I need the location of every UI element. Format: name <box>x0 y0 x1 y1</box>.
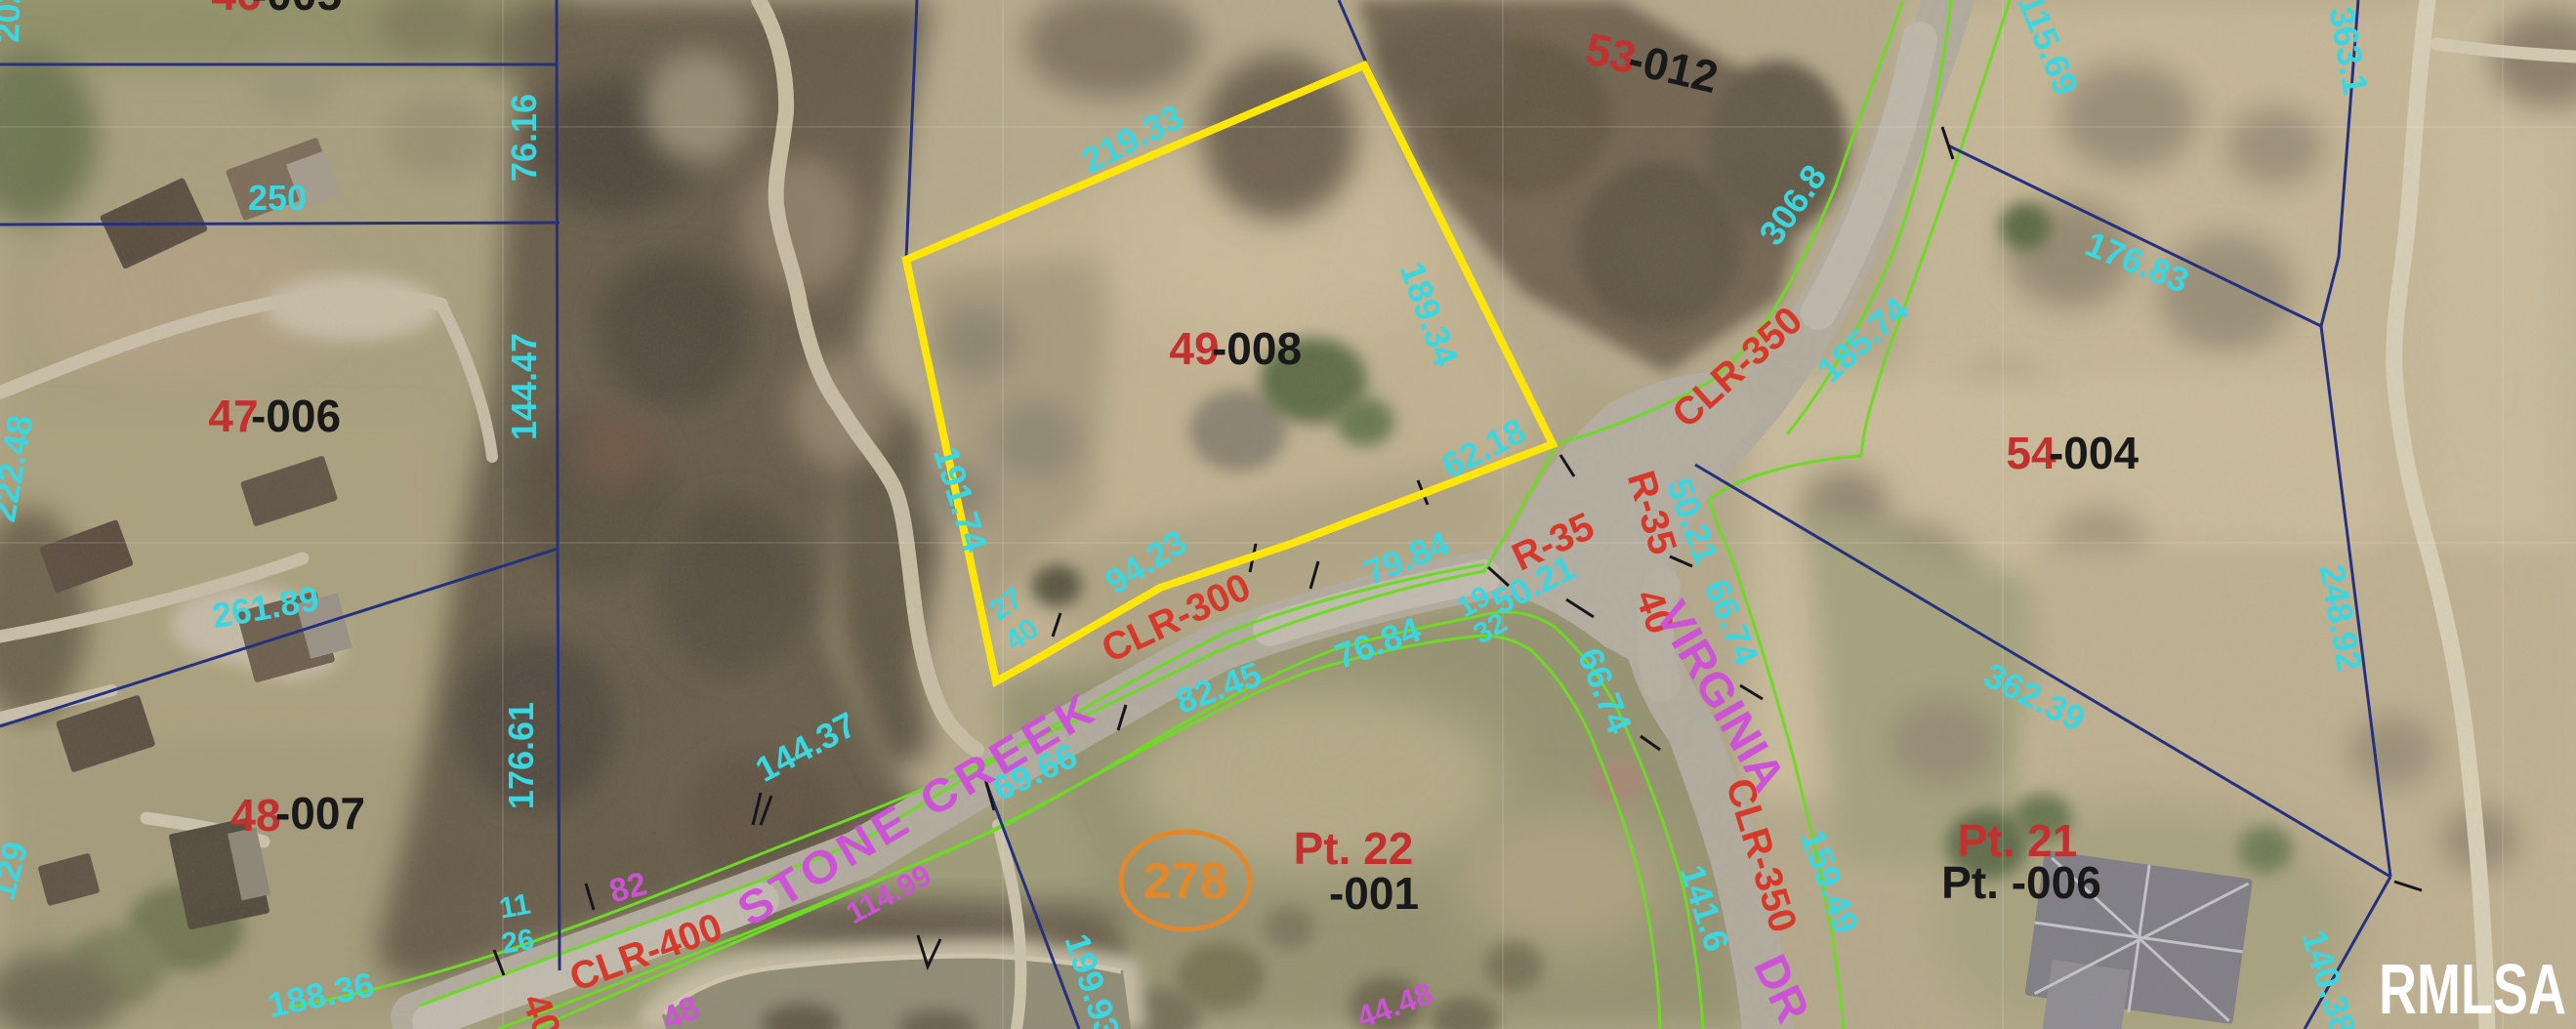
svg-text:-004: -004 <box>2049 428 2139 478</box>
svg-text:RMLSA: RMLSA <box>2379 951 2566 1029</box>
svg-text:-001: -001 <box>1329 868 1419 919</box>
svg-text:76.16: 76.16 <box>504 94 544 182</box>
svg-text:144.47: 144.47 <box>504 333 544 440</box>
svg-text:Pt. 22: Pt. 22 <box>1294 823 1414 874</box>
svg-text:Pt. -006: Pt. -006 <box>1941 857 2101 908</box>
svg-text:-008: -008 <box>1212 323 1302 374</box>
svg-text:278: 278 <box>1143 853 1228 910</box>
svg-text:176.61: 176.61 <box>501 702 541 809</box>
svg-text:-005: -005 <box>252 0 342 20</box>
svg-text:-007: -007 <box>275 788 365 839</box>
svg-text:250: 250 <box>248 178 307 218</box>
svg-text:26: 26 <box>499 923 537 960</box>
svg-text:202: 202 <box>0 0 28 43</box>
svg-text:11: 11 <box>497 888 533 926</box>
svg-text:-006: -006 <box>251 391 341 441</box>
svg-text:48: 48 <box>230 790 280 841</box>
